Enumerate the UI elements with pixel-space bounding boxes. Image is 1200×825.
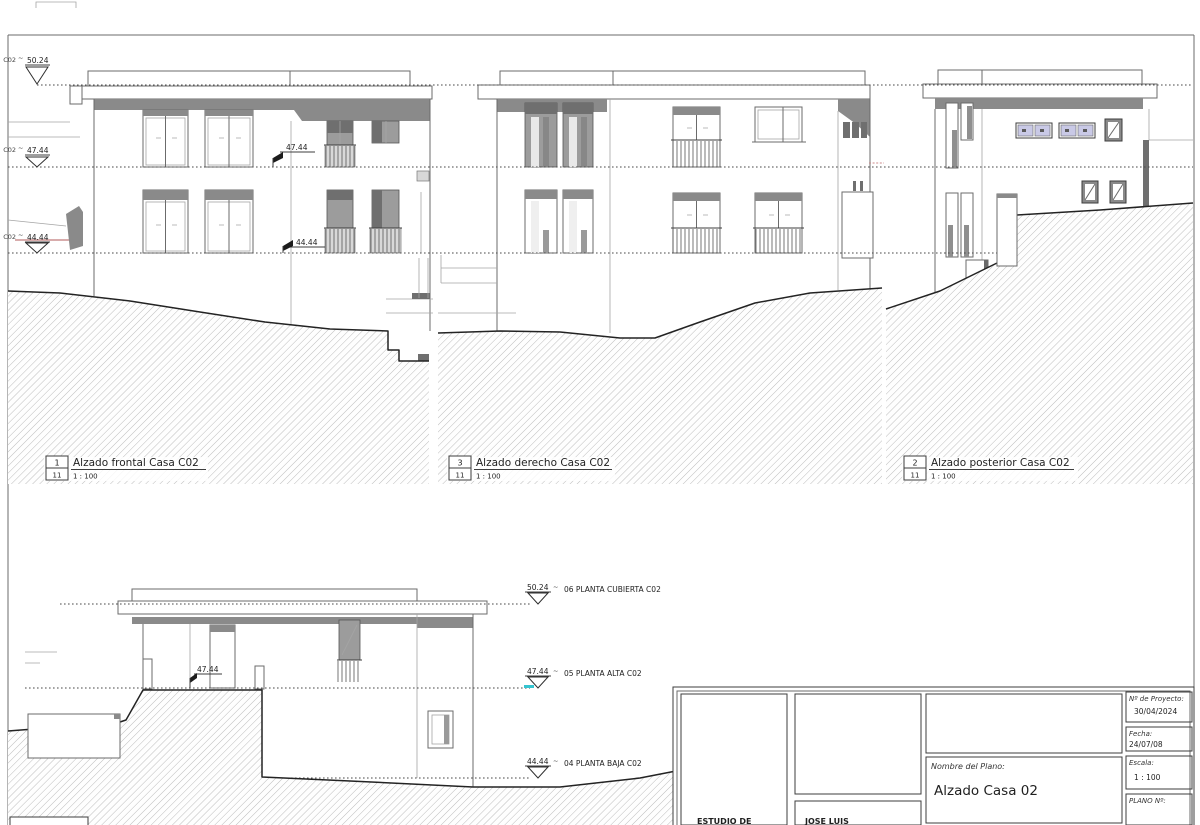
view-total: 11	[911, 472, 920, 480]
level-markers-right: 50.24 ~ 06 PLANTA CUBIERTA C02 47.44 ~ 0…	[524, 583, 661, 778]
view-total: 11	[53, 472, 62, 480]
level-label: 05 PLANTA ALTA C02	[564, 669, 642, 678]
level-ref: C02	[3, 233, 16, 241]
roof-slab	[923, 84, 1157, 98]
level-ref: C02	[3, 56, 16, 64]
tilde: ~	[553, 583, 558, 591]
window	[143, 110, 188, 167]
level-marker: 44.44 ~ 04 PLANTA BAJA C02	[525, 757, 642, 778]
level-value: 50.24	[527, 583, 549, 592]
view-tag-derecho: 3 11 Alzado derecho Casa C02 1 : 100	[447, 456, 615, 481]
window	[1059, 123, 1095, 138]
level-ref: C02	[3, 146, 16, 154]
parapet	[500, 71, 613, 85]
date-value: 24/07/08	[1129, 740, 1163, 749]
outbuilding	[28, 714, 120, 758]
spot-level: 47.44	[273, 143, 315, 167]
parapet	[613, 71, 865, 85]
window	[1105, 119, 1122, 141]
elevation-frontal-drawing	[8, 71, 433, 331]
survey-mark	[524, 685, 534, 688]
window	[324, 190, 356, 253]
level-marker: C02 ~ 44.44	[3, 231, 50, 253]
level-marker: 47.44 ~ 05 PLANTA ALTA C02	[524, 667, 642, 688]
window	[1082, 181, 1098, 203]
window	[946, 103, 973, 168]
scale-label: Escala:	[1129, 759, 1154, 767]
view-total: 11	[456, 472, 465, 480]
door	[210, 625, 235, 688]
project-no-label: Nº de Proyecto:	[1129, 695, 1184, 703]
level-value: 47.44	[527, 667, 549, 676]
title-block: ESTUDIO DE JOSE LUIS Nombre del Plano: A…	[673, 687, 1194, 825]
corner-tag-box	[10, 817, 88, 825]
window	[671, 193, 722, 253]
project-no-value: 30/04/2024	[1134, 707, 1177, 716]
level-label: 06 PLANTA CUBIERTA C02	[564, 585, 661, 594]
window	[525, 190, 557, 253]
view-number: 2	[912, 459, 917, 468]
window	[563, 103, 593, 167]
drawing-canvas: C02 ~ 50.24 C02 ~ 47.44 C02 ~ 44.44 47.4…	[0, 0, 1200, 825]
roof-slab	[118, 601, 487, 614]
date-label: Fecha:	[1129, 730, 1152, 738]
roof-fascia	[417, 617, 473, 628]
scale-value: 1 : 100	[1134, 773, 1161, 782]
view-scale: 1 : 100	[476, 473, 501, 481]
parapet	[88, 71, 410, 86]
window	[671, 107, 722, 167]
tilde: ~	[18, 144, 23, 152]
window	[205, 110, 253, 167]
level-value: 44.44	[27, 233, 49, 242]
level-value: 47.44	[27, 146, 49, 155]
window	[337, 620, 362, 682]
window	[205, 190, 253, 253]
tilde: ~	[553, 757, 558, 765]
window	[563, 190, 593, 253]
spot-level: 44.44	[283, 238, 325, 253]
author-text: JOSE LUIS	[804, 817, 849, 825]
view-number: 1	[54, 459, 59, 468]
view-scale: 1 : 100	[931, 473, 956, 481]
tilde: ~	[18, 54, 23, 62]
window	[143, 190, 188, 253]
level-marker: 50.24 ~ 06 PLANTA CUBIERTA C02	[525, 583, 661, 604]
plan-name-label: Nombre del Plano:	[931, 762, 1005, 771]
view-number: 3	[457, 459, 462, 468]
roof-fascia	[132, 617, 417, 624]
window	[753, 193, 804, 253]
drawing-sheet: C02 ~ 50.24 C02 ~ 47.44 C02 ~ 44.44 47.4…	[0, 0, 1200, 825]
level-markers-left: C02 ~ 50.24 C02 ~ 47.44 C02 ~ 44.44	[3, 54, 50, 253]
retaining-wall	[997, 194, 1017, 266]
spot-value: 47.44	[197, 665, 219, 674]
terrace-parapet	[842, 163, 884, 258]
level-value: 50.24	[27, 56, 49, 65]
plan-name-value: Alzado Casa 02	[934, 783, 1038, 799]
level-value: 44.44	[527, 757, 549, 766]
pillar	[255, 666, 264, 689]
pillar	[143, 659, 152, 689]
studio-text: ESTUDIO DE	[697, 817, 752, 825]
level-label: 04 PLANTA BAJA C02	[564, 759, 642, 768]
window	[946, 193, 973, 257]
spot-value: 47.44	[286, 143, 308, 152]
parapet	[938, 70, 1142, 84]
window	[428, 711, 453, 748]
view-title: Alzado derecho Casa C02	[476, 457, 610, 469]
view-title: Alzado frontal Casa C02	[73, 457, 199, 469]
tilde: ~	[18, 231, 23, 239]
view-tag-frontal: 1 11 Alzado frontal Casa C02 1 : 100	[44, 456, 208, 481]
wall-edge	[1143, 140, 1149, 210]
roof-slab	[478, 85, 870, 99]
window	[843, 122, 867, 138]
tilde: ~	[553, 667, 558, 675]
terrain-hatch-bottom	[8, 690, 676, 825]
window	[752, 107, 806, 142]
window	[1110, 181, 1126, 203]
spot-value: 44.44	[296, 238, 318, 247]
roof-slab	[70, 86, 432, 99]
plan-no-label: PLANO Nº:	[1129, 797, 1166, 805]
window	[372, 121, 399, 143]
level-marker: C02 ~ 50.24	[3, 54, 50, 84]
view-scale: 1 : 100	[73, 473, 98, 481]
window	[1016, 123, 1052, 138]
view-tag-posterior: 2 11 Alzado posterior Casa C02 1 : 100	[902, 456, 1078, 481]
level-marker: C02 ~ 47.44	[3, 144, 50, 167]
view-title: Alzado posterior Casa C02	[931, 457, 1070, 469]
window	[369, 190, 402, 253]
window	[324, 121, 356, 167]
window	[525, 103, 557, 167]
parapet	[132, 589, 417, 601]
